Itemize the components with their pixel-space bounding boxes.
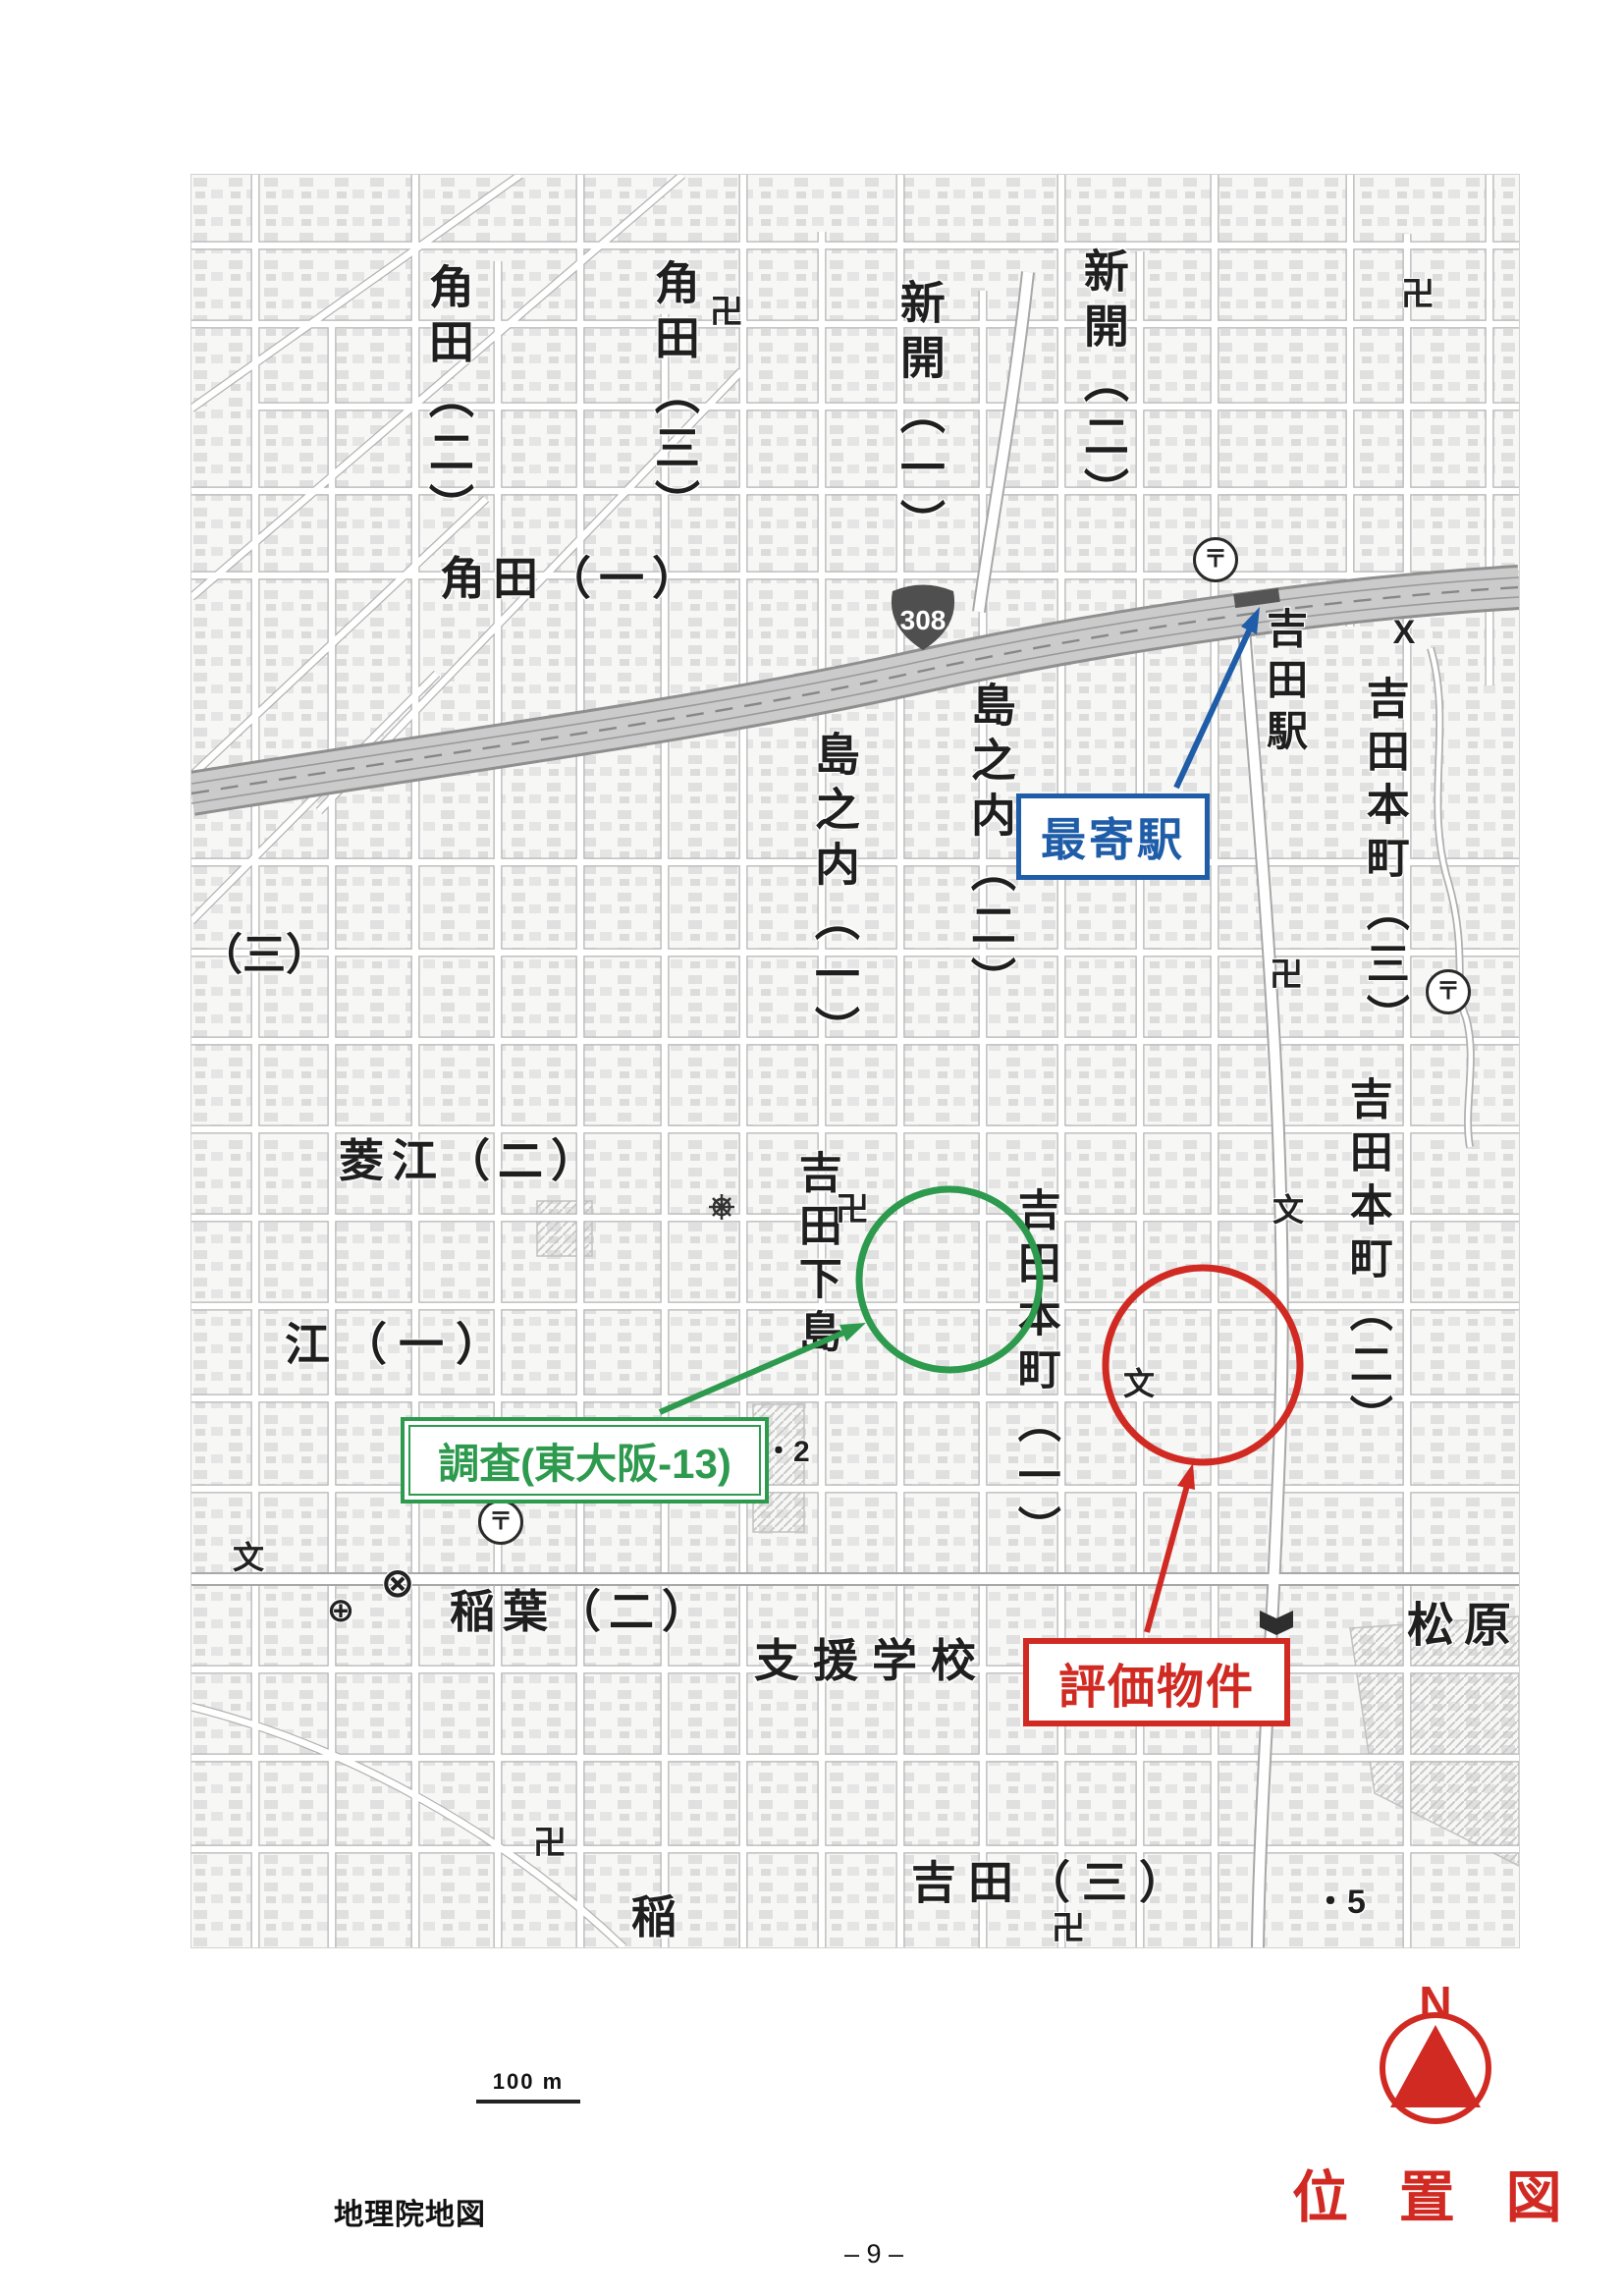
map-label-e-1: 江（一） (285, 1322, 513, 1369)
map-credit: 地理院地図 (334, 2190, 486, 2233)
police-station-icon: ⊗ (380, 1562, 414, 1604)
map-label-yoshida-honmachi-1: 吉田本町（一） (1012, 1187, 1057, 1558)
map-label-inaba-2: 稲葉（二） (450, 1589, 715, 1636)
map-label-yoshida-honmachi-3: 吉田本町（三） (1361, 676, 1406, 1047)
nearest-station-label: 最寄駅 (1041, 804, 1185, 869)
map-label-kakuda-3: 角田（三） (650, 259, 697, 534)
map-label-spot-height-5: ・5 (1314, 1886, 1366, 1920)
scale-bar: 100 m (476, 2064, 580, 2104)
school-icon: 文 (1272, 1194, 1304, 1226)
temple-icon: 卍 (836, 1193, 869, 1227)
temple-icon: 卍 (533, 1827, 567, 1860)
map-label-yoshida-shimojima: 吉田下島 (793, 1150, 839, 1362)
map-labels-layer: 角田（二）角田（三）新開（一）新開（二）角田（一）島之内（一）島之内（二）吉田駅… (191, 175, 1519, 1947)
police-box-icon: X (1393, 616, 1416, 649)
nearest-station-callout: 最寄駅 (1016, 793, 1210, 880)
temple-icon: 卍 (710, 296, 743, 329)
map-label-yoshida-3: 吉田（三） (911, 1860, 1196, 1907)
map-label-kakuda-2: 角田（二） (424, 263, 471, 538)
temple-icon: 卍 (1270, 958, 1303, 992)
post-office-icon: 〒 (1426, 969, 1471, 1014)
map-label-ina: 稲 (631, 1894, 677, 1941)
health-center-icon: ⊕ (327, 1594, 355, 1627)
post-office-icon: 〒 (478, 1500, 523, 1545)
map-label-matsubara: 松原 (1407, 1602, 1521, 1651)
school-icon: 文 (233, 1542, 264, 1573)
compass-north-letter: N (1396, 1976, 1475, 2029)
temple-icon: 卍 (1401, 278, 1435, 311)
map-label-shimanouchi-1: 島之内（一） (810, 731, 857, 1061)
map-label-kakuda-1: 角田（一） (440, 556, 705, 603)
survey-point-label: 調査(東大阪-13) (438, 1431, 731, 1491)
map-label-shimanouchi-2: 島之内（二） (966, 682, 1013, 1011)
map-label-shinkai-1: 新開（一） (895, 279, 943, 554)
map-label-shinkai-2: 新開（二） (1079, 247, 1126, 522)
temple-icon: 卍 (1052, 1912, 1085, 1945)
subject-property-callout: 評価物件 (1023, 1638, 1290, 1726)
post-office-icon: 〒 (1193, 537, 1238, 582)
survey-point-callout: 調査(東大阪-13) (401, 1417, 769, 1503)
map-label-spot-height-2: ・2 (764, 1437, 810, 1467)
map-label-yoshida-station: 吉田駅 (1263, 607, 1306, 760)
map-label-hishie-2: 菱江（二） (339, 1138, 604, 1185)
north-compass-icon (1382, 2015, 1489, 2121)
scale-bar-label: 100 m (493, 2069, 564, 2095)
location-map-page: 308 角田（二）角田（三）新開（一）新開（二）角田（一）島之内（一）島之内（二… (0, 0, 1624, 2296)
map-label-yoshida-honmachi-2: 吉田本町（二） (1344, 1076, 1389, 1448)
map-label-shien-gakko: 支援学校 (754, 1638, 990, 1685)
page-title: 位 置 図 (1292, 2153, 1578, 2233)
subject-property-label: 評価物件 (1058, 1648, 1255, 1717)
page-number: – 9 – (776, 2239, 972, 2269)
map-image: 308 角田（二）角田（三）新開（一）新開（二）角田（一）島之内（一）島之内（二… (191, 175, 1519, 1947)
school-icon: 文 (1123, 1368, 1155, 1399)
map-label-hishie-3-cut: （三） (199, 933, 329, 978)
